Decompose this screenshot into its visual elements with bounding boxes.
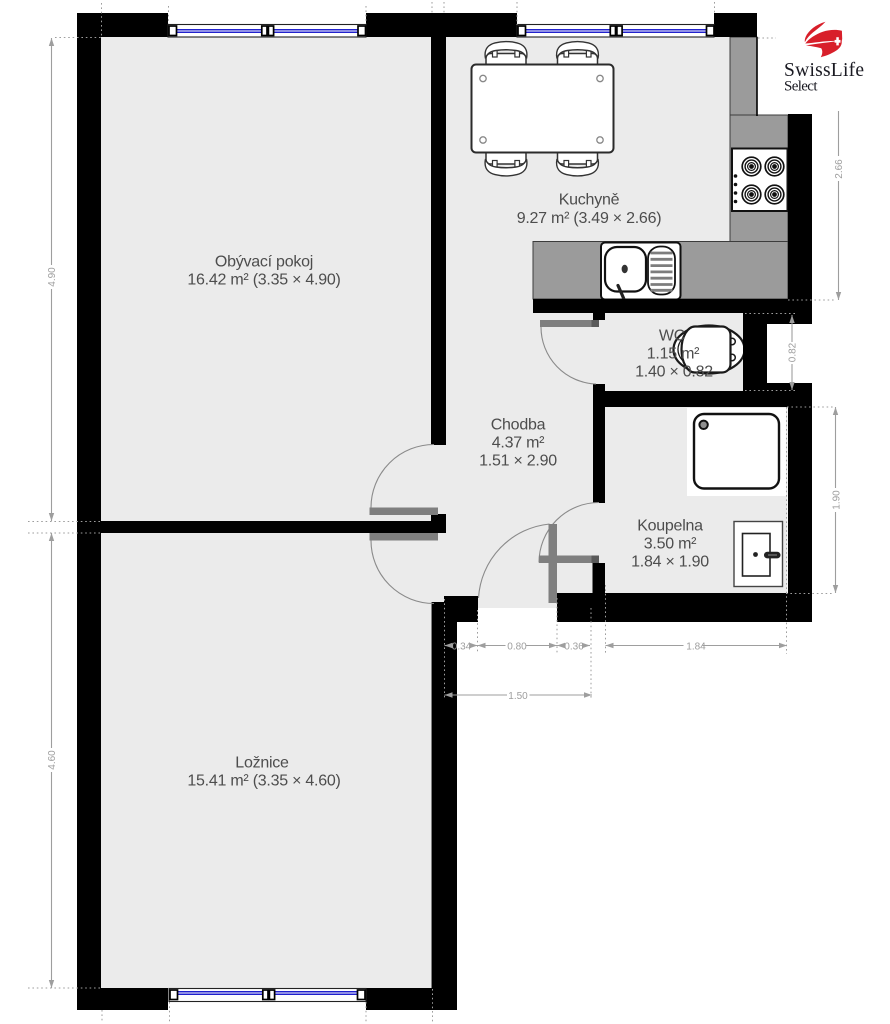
svg-text:0.34: 0.34 [452,642,472,653]
svg-text:15.41 m² (3.35 × 4.60): 15.41 m² (3.35 × 4.60) [187,773,340,790]
svg-text:1.51 × 2.90: 1.51 × 2.90 [479,453,557,470]
svg-text:4.90: 4.90 [47,267,58,287]
svg-text:1.84: 1.84 [686,642,706,653]
svg-text:0.36: 0.36 [564,642,584,653]
svg-text:16.42 m² (3.35 × 4.90): 16.42 m² (3.35 × 4.90) [187,272,340,289]
svg-text:3.50 m²: 3.50 m² [644,536,697,553]
svg-text:WC: WC [659,328,685,345]
svg-text:0.80: 0.80 [507,642,527,653]
svg-text:1.90: 1.90 [832,490,843,510]
svg-text:Koupelna: Koupelna [637,518,703,535]
svg-text:Kuchyně: Kuchyně [559,192,620,209]
svg-text:Chodba: Chodba [491,417,546,434]
svg-text:1.84 × 1.90: 1.84 × 1.90 [631,554,709,571]
svg-text:1.15 m²: 1.15 m² [647,346,700,363]
svg-text:0.82: 0.82 [788,342,799,362]
svg-text:4.37 m²: 4.37 m² [492,435,545,452]
svg-text:1.40 × 0.82: 1.40 × 0.82 [635,364,713,381]
svg-text:9.27 m² (3.49 × 2.66): 9.27 m² (3.49 × 2.66) [517,210,662,227]
svg-text:1.50: 1.50 [508,691,528,702]
svg-text:Obývací pokoj: Obývací pokoj [215,254,313,271]
svg-text:Ložnice: Ložnice [235,755,289,772]
svg-text:Select: Select [784,79,818,95]
svg-text:2.66: 2.66 [834,159,845,179]
svg-text:4.60: 4.60 [47,750,58,770]
